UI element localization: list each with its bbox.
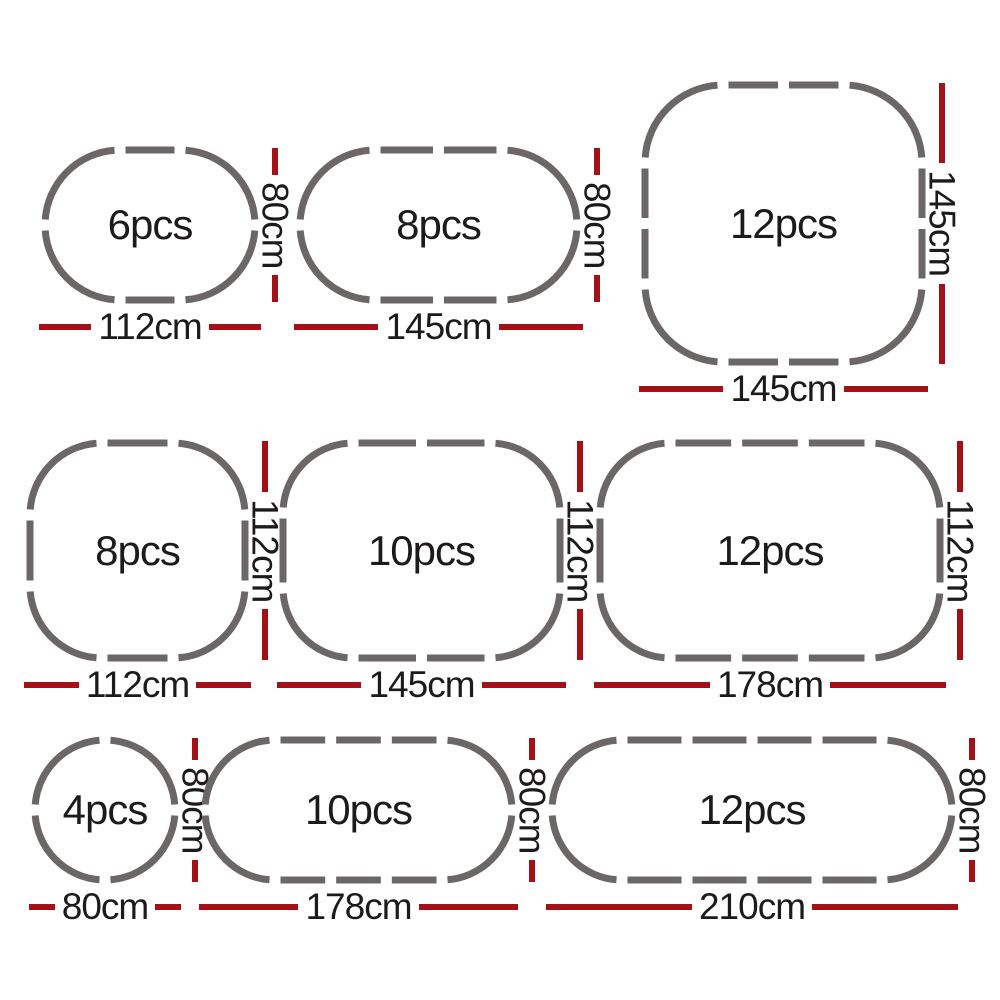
height-dimension-label: 112cm — [562, 492, 599, 609]
dimension-line — [969, 738, 975, 760]
height-dimension-label: 112cm — [942, 492, 979, 609]
track-set-square-8pcs: 8pcs 112cm 112cm — [30, 443, 245, 658]
width-dimension-label: 178cm — [298, 888, 418, 925]
dimension-line — [939, 83, 945, 163]
height-dimension: 112cm — [940, 441, 980, 660]
dimension-line — [529, 738, 535, 760]
width-dimension: 112cm — [39, 308, 261, 345]
track-outline — [277, 437, 566, 664]
width-dimension: 145cm — [277, 666, 566, 703]
dimension-line — [546, 904, 692, 910]
height-dimension: 80cm — [577, 148, 617, 302]
width-dimension-label: 145cm — [361, 666, 481, 703]
height-dimension-label: 80cm — [579, 175, 616, 275]
width-dimension: 145cm — [639, 370, 928, 407]
dimension-line — [272, 275, 278, 302]
track-outline — [294, 144, 583, 306]
height-dimension: 145cm — [922, 83, 962, 364]
dimension-line — [419, 904, 518, 910]
dimension-line — [196, 682, 251, 688]
width-dimension-label: 145cm — [723, 370, 843, 407]
track-set-square-12pcs: 12pcs 145cm 145cm — [645, 85, 922, 362]
width-dimension-label: 178cm — [710, 666, 830, 703]
width-dimension: 112cm — [24, 666, 251, 703]
dimension-line — [482, 682, 566, 688]
dimension-line — [155, 904, 181, 910]
dimension-line — [594, 682, 710, 688]
width-dimension: 178cm — [594, 666, 946, 703]
dimension-line — [272, 148, 278, 175]
track-set-oval-12pcs: 12pcs 210cm 80cm — [552, 740, 952, 880]
dimension-line — [957, 609, 963, 660]
dimension-line — [277, 682, 361, 688]
width-dimension-label: 145cm — [378, 308, 498, 345]
dimension-line — [192, 738, 198, 760]
dimension-line — [830, 682, 946, 688]
track-configurations-diagram: 6pcs 112cm 80cm 8pcs 145cm 80cm 12pcs — [0, 0, 1000, 1000]
width-dimension-label: 210cm — [692, 888, 812, 925]
track-outline — [24, 437, 251, 664]
dimension-line — [577, 441, 583, 492]
height-dimension: 80cm — [952, 738, 992, 882]
dimension-line — [262, 441, 268, 492]
width-dimension: 178cm — [199, 888, 518, 925]
track-set-oval-6pcs: 6pcs 112cm 80cm — [45, 150, 255, 300]
width-dimension: 210cm — [546, 888, 958, 925]
track-outline — [546, 734, 958, 886]
track-set-rectangle-12pcs: 12pcs 178cm 112cm — [600, 443, 940, 658]
height-dimension-label: 80cm — [954, 760, 991, 860]
track-set-oval-10pcs: 10pcs 178cm 80cm — [205, 740, 512, 880]
dimension-line — [844, 386, 928, 392]
dimension-line — [262, 609, 268, 660]
width-dimension-label: 112cm — [91, 308, 208, 345]
dimension-line — [969, 860, 975, 882]
width-dimension: 145cm — [294, 308, 583, 345]
track-set-rectangle-10pcs: 10pcs 145cm 112cm — [283, 443, 560, 658]
dimension-line — [24, 682, 79, 688]
track-outline — [199, 734, 518, 886]
track-outline — [594, 437, 946, 664]
dimension-line — [39, 324, 91, 330]
height-dimension: 80cm — [255, 148, 295, 302]
dimension-line — [29, 904, 55, 910]
dimension-line — [594, 275, 600, 302]
dimension-line — [957, 441, 963, 492]
height-dimension-label: 145cm — [924, 163, 961, 283]
track-outline — [639, 79, 928, 368]
dimension-line — [529, 860, 535, 882]
dimension-line — [812, 904, 958, 910]
track-set-circle-4pcs: 4pcs 80cm 80cm — [35, 740, 175, 880]
dimension-line — [192, 860, 198, 882]
dimension-line — [294, 324, 378, 330]
dimension-line — [577, 609, 583, 660]
dimension-line — [639, 386, 723, 392]
width-dimension-label: 112cm — [79, 666, 196, 703]
height-dimension-label: 80cm — [257, 175, 294, 275]
width-dimension-label: 80cm — [55, 888, 155, 925]
dimension-line — [939, 284, 945, 364]
track-outline — [39, 144, 261, 306]
dimension-line — [199, 904, 298, 910]
track-outline — [29, 734, 181, 886]
dimension-line — [594, 148, 600, 175]
dimension-line — [499, 324, 583, 330]
height-dimension-label: 80cm — [514, 760, 551, 860]
track-set-oval-8pcs: 8pcs 145cm 80cm — [300, 150, 577, 300]
width-dimension: 80cm — [29, 888, 181, 925]
dimension-line — [209, 324, 261, 330]
